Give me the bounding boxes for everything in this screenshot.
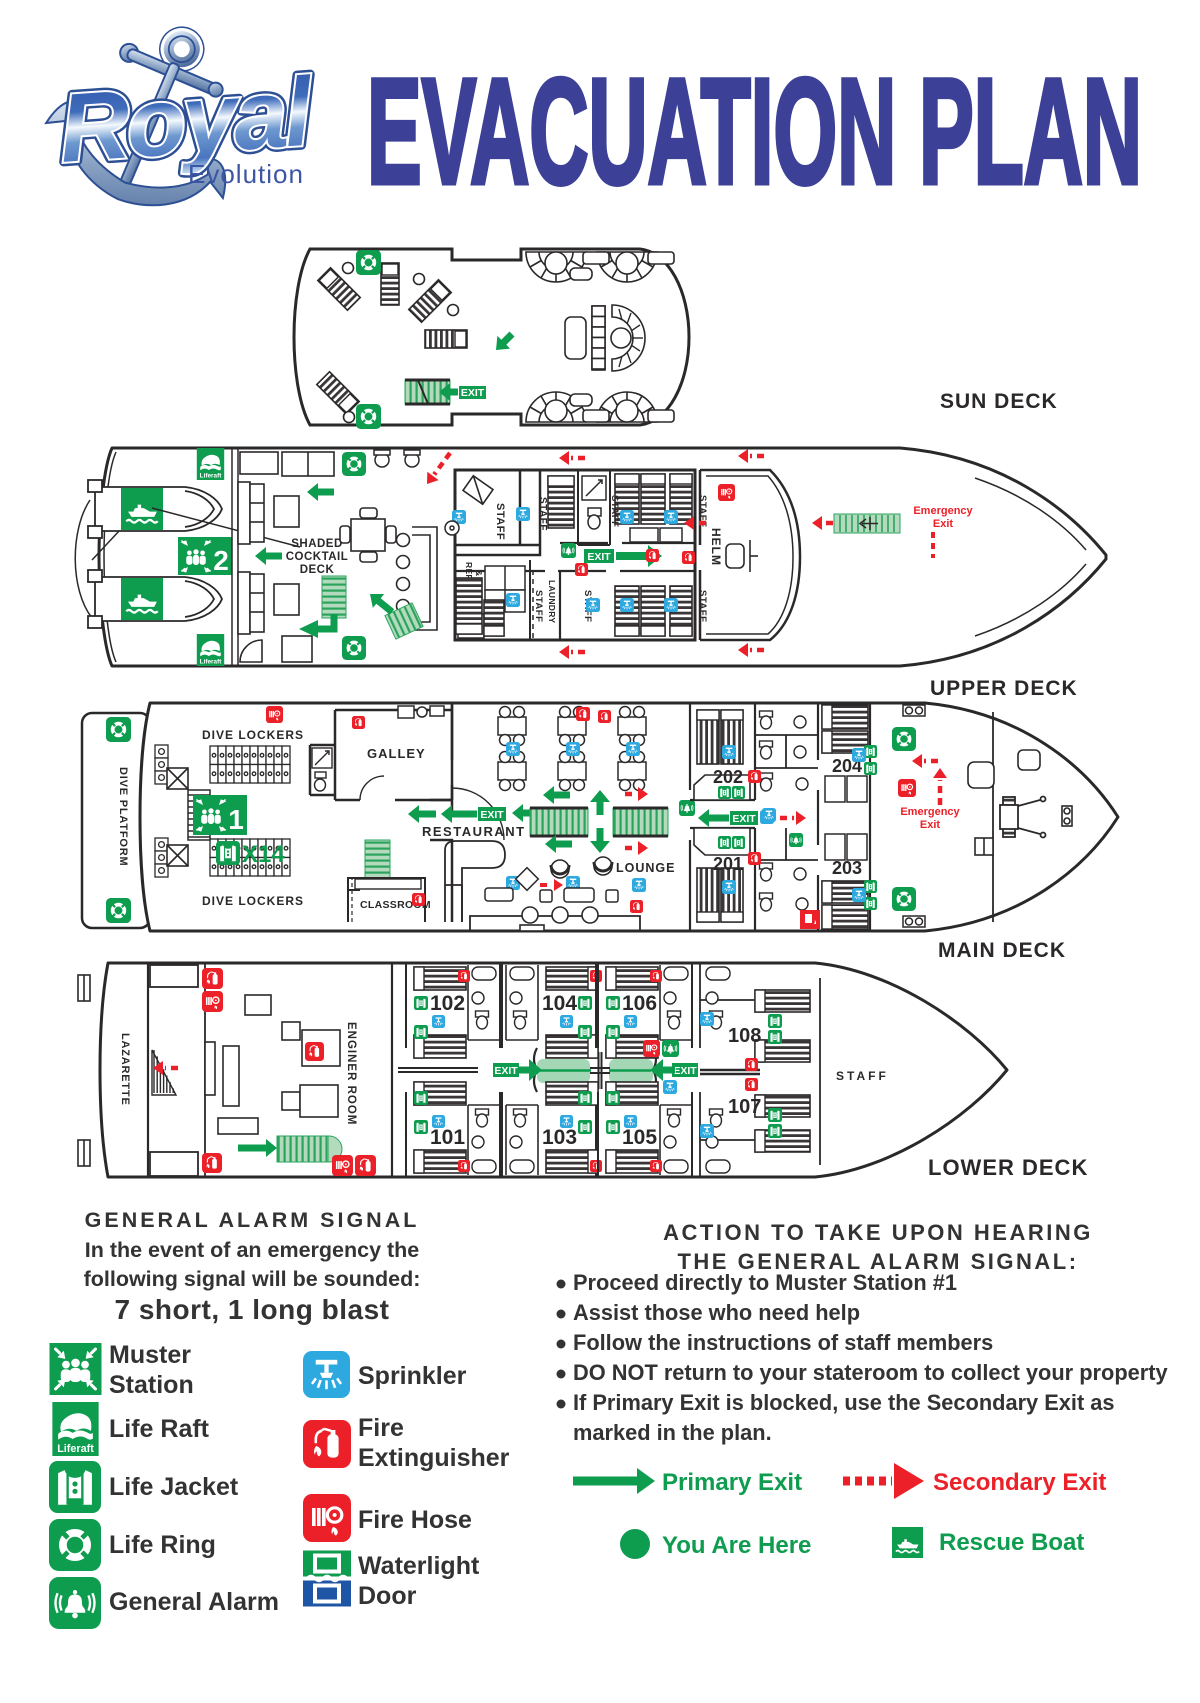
- svg-text:EXIT: EXIT: [587, 551, 611, 563]
- svg-text:103: 103: [542, 1126, 577, 1149]
- svg-text:Life Jacket: Life Jacket: [109, 1473, 239, 1501]
- svg-text:following signal will be sound: following signal will be sounded:: [84, 1267, 421, 1291]
- svg-text:DECK: DECK: [300, 564, 335, 576]
- svg-text:DIVE LOCKERS: DIVE LOCKERS: [202, 894, 304, 908]
- svg-text:202: 202: [713, 767, 743, 787]
- svg-text:Life Raft: Life Raft: [109, 1415, 210, 1443]
- svg-text:GENERAL ALARM SIGNAL: GENERAL ALARM SIGNAL: [85, 1208, 420, 1232]
- svg-text:EXIT: EXIT: [673, 1065, 697, 1077]
- svg-text:EXIT: EXIT: [494, 1065, 518, 1077]
- svg-text:Muster: Muster: [109, 1341, 191, 1369]
- svg-text:RESTAURANT: RESTAURANT: [422, 824, 526, 839]
- svg-text:EXIT: EXIT: [461, 387, 485, 399]
- svg-text:Door: Door: [358, 1582, 417, 1610]
- svg-text:COCKTAIL: COCKTAIL: [286, 551, 349, 563]
- svg-text:Follow the instructions of sta: Follow the instructions of staff members: [573, 1330, 993, 1355]
- svg-text:ACTION TO TAKE UPON HEARING: ACTION TO TAKE UPON HEARING: [663, 1220, 1093, 1245]
- svg-text:Evolution: Evolution: [188, 159, 304, 189]
- svg-text:You Are Here: You Are Here: [662, 1532, 811, 1559]
- svg-text:In the event of an emergency t: In the event of an emergency the: [85, 1238, 420, 1262]
- svg-text:Exit: Exit: [920, 819, 941, 831]
- svg-text:DO NOT return to your stateroo: DO NOT return to your stateroom to colle…: [573, 1360, 1168, 1385]
- svg-text:LOUNGE: LOUNGE: [616, 861, 675, 875]
- svg-text:STAFF: STAFF: [494, 503, 506, 540]
- svg-text:Fire Hose: Fire Hose: [358, 1506, 472, 1534]
- svg-text:STAFF: STAFF: [533, 590, 544, 622]
- svg-text:EXIT: EXIT: [480, 809, 504, 821]
- svg-text:Station: Station: [109, 1371, 194, 1399]
- svg-text:104: 104: [542, 992, 577, 1015]
- svg-text:Fire: Fire: [358, 1414, 404, 1442]
- svg-text:STAFF: STAFF: [697, 590, 708, 622]
- svg-text:Emergency: Emergency: [913, 505, 973, 517]
- svg-text:Assist those who need help: Assist those who need help: [573, 1300, 860, 1325]
- svg-text:HELM: HELM: [709, 528, 723, 566]
- svg-text:STAFF: STAFF: [836, 1069, 889, 1083]
- svg-text:101: 101: [430, 1126, 465, 1149]
- svg-text:105: 105: [622, 1126, 657, 1149]
- svg-text:203: 203: [832, 858, 862, 878]
- svg-text:1: 1: [228, 804, 244, 835]
- svg-text:7 short, 1 long blast: 7 short, 1 long blast: [115, 1294, 390, 1325]
- svg-text:EVACUATION PLAN: EVACUATION PLAN: [367, 47, 1142, 215]
- svg-text:MAIN DECK: MAIN DECK: [938, 939, 1066, 962]
- svg-text:201: 201: [713, 854, 743, 874]
- svg-text:ENGINER ROOM: ENGINER ROOM: [345, 1022, 357, 1125]
- svg-text:X14: X14: [242, 841, 285, 868]
- svg-text:Rescue Boat: Rescue Boat: [939, 1529, 1084, 1556]
- svg-text:Sprinkler: Sprinkler: [358, 1362, 467, 1390]
- svg-text:Primary Exit: Primary Exit: [662, 1469, 802, 1496]
- svg-text:STAFF: STAFF: [537, 497, 548, 531]
- svg-text:SHADED: SHADED: [291, 538, 343, 550]
- svg-text:marked in the plan.: marked in the plan.: [573, 1420, 772, 1445]
- svg-text:Extinguisher: Extinguisher: [358, 1444, 510, 1472]
- svg-text:Exit: Exit: [933, 518, 954, 530]
- svg-text:108: 108: [728, 1025, 761, 1047]
- svg-text:102: 102: [430, 992, 465, 1015]
- svg-text:SUN DECK: SUN DECK: [940, 390, 1058, 413]
- svg-text:STAFF: STAFF: [609, 495, 620, 527]
- svg-text:Secondary Exit: Secondary Exit: [933, 1469, 1106, 1496]
- svg-text:Emergency: Emergency: [900, 806, 960, 818]
- svg-text:LOWER DECK: LOWER DECK: [928, 1155, 1088, 1180]
- svg-text:2: 2: [213, 545, 229, 576]
- svg-text:LAZARETTE: LAZARETTE: [119, 1033, 131, 1106]
- svg-text:General Alarm: General Alarm: [109, 1588, 279, 1616]
- svg-text:DIVE LOCKERS: DIVE LOCKERS: [202, 728, 304, 742]
- svg-text:Life Ring: Life Ring: [109, 1531, 216, 1559]
- svg-text:107: 107: [728, 1096, 761, 1118]
- svg-text:LAUNDRY: LAUNDRY: [547, 580, 557, 623]
- svg-text:Proceed directly to Muster Sta: Proceed directly to Muster Station #1: [573, 1270, 957, 1295]
- svg-text:If Primary Exit is blocked, us: If Primary Exit is blocked, use the Seco…: [573, 1390, 1115, 1415]
- svg-text:UPPER DECK: UPPER DECK: [930, 677, 1078, 700]
- svg-text:DIVE PLATFORM: DIVE PLATFORM: [117, 767, 129, 866]
- svg-text:GALLEY: GALLEY: [367, 746, 426, 761]
- svg-text:106: 106: [622, 992, 657, 1015]
- svg-text:Waterlight: Waterlight: [358, 1552, 480, 1580]
- svg-text:EXIT: EXIT: [732, 813, 756, 825]
